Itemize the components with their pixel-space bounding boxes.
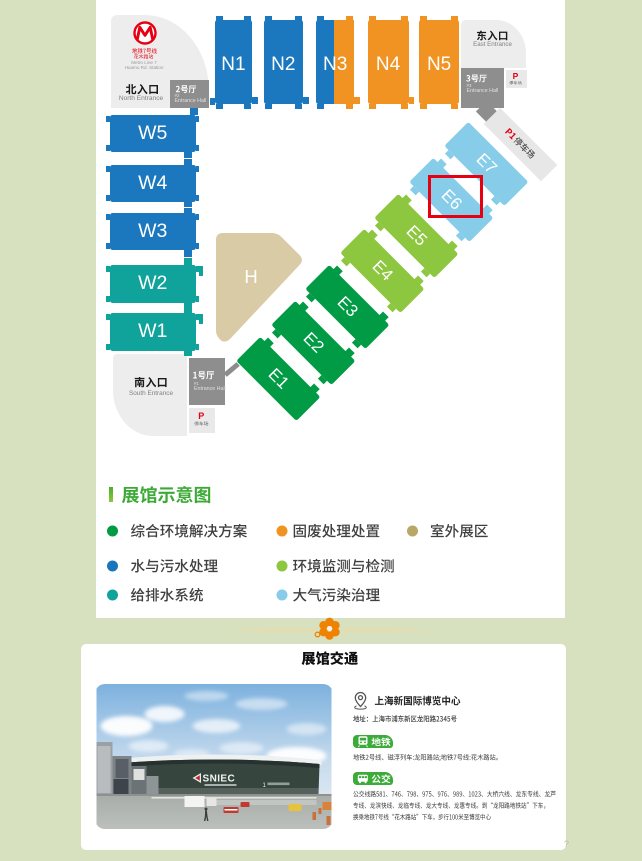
svg-text:SNIEC: SNIEC (203, 774, 236, 785)
